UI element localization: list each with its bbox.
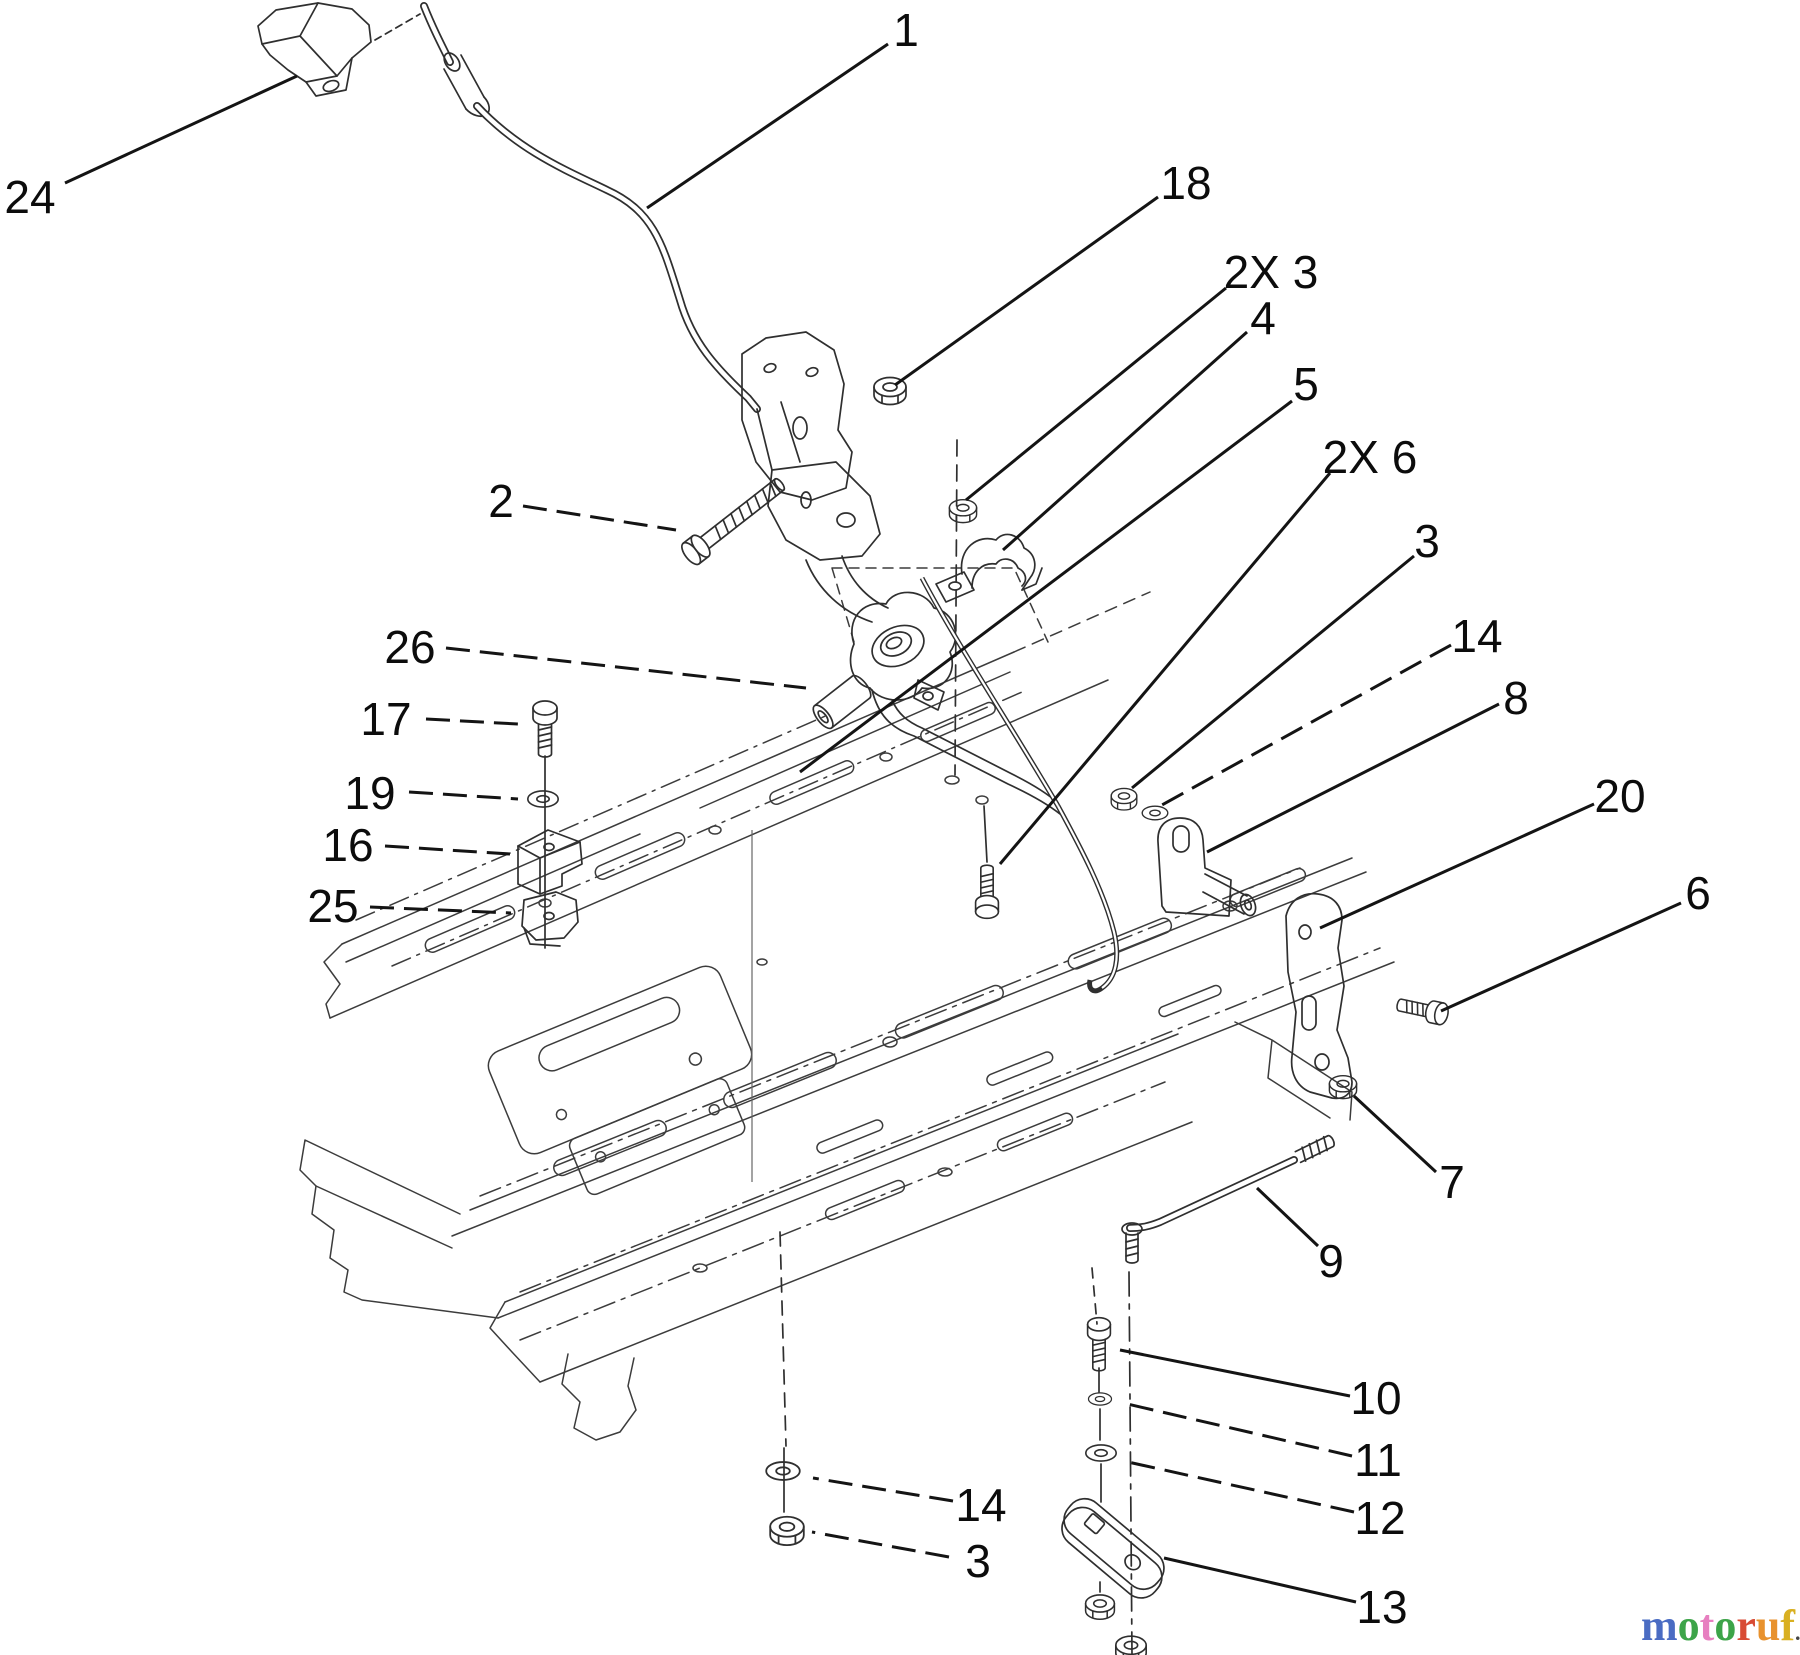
leader-line xyxy=(385,846,510,854)
callout-label: 3 xyxy=(965,1535,991,1587)
callout-4: 4 xyxy=(1003,292,1276,550)
callout-label: 19 xyxy=(344,767,395,819)
callout-20: 20 xyxy=(1320,770,1646,928)
leader-line xyxy=(1123,1403,1352,1456)
callout-label: 25 xyxy=(307,880,358,932)
callouts-layer: 241182X 3452X 63148206791011121314322617… xyxy=(4,4,1710,1633)
callout-24: 24 xyxy=(4,76,297,223)
callout-label: 12 xyxy=(1354,1492,1405,1544)
washer-14-right xyxy=(1142,806,1168,820)
leader-line xyxy=(1132,556,1414,788)
leader-line xyxy=(409,792,518,799)
callout-13: 13 xyxy=(1164,1558,1408,1633)
leader-line xyxy=(523,506,676,530)
callout-18: 18 xyxy=(895,157,1212,385)
callout-label: 1 xyxy=(893,4,919,56)
callout-label: 26 xyxy=(384,621,435,673)
callout-5: 5 xyxy=(800,358,1319,772)
callout-label: 24 xyxy=(4,171,55,223)
leader-line xyxy=(1257,1188,1318,1246)
callout-label: 8 xyxy=(1503,672,1529,724)
callout-label: 4 xyxy=(1250,292,1276,344)
leader-line xyxy=(370,907,511,913)
leader-line xyxy=(1120,1350,1350,1396)
parts-diagram-page: 241182X 3452X 63148206791011121314322617… xyxy=(0,0,1800,1655)
leader-line xyxy=(1164,1558,1356,1602)
fastener-stack-right xyxy=(1052,1272,1175,1655)
washer-12 xyxy=(1086,1445,1116,1461)
callout-label: 5 xyxy=(1293,358,1319,410)
motoruf-watermark: motoruf.de xyxy=(1641,1601,1800,1650)
callout-label: 9 xyxy=(1318,1235,1344,1287)
callout-2: 2 xyxy=(488,475,676,530)
callout-8: 8 xyxy=(1207,672,1529,852)
callout-6: 6 xyxy=(1441,867,1711,1011)
nut-3-bottom xyxy=(770,1517,804,1545)
leader-line xyxy=(446,648,806,688)
leader-line xyxy=(1128,1462,1354,1512)
leader-line xyxy=(647,44,888,208)
callout-10: 10 xyxy=(1120,1350,1402,1424)
washer-14-bottom xyxy=(766,1462,800,1480)
exploded-parts-diagram: 241182X 3452X 63148206791011121314322617… xyxy=(0,0,1800,1655)
callout-label: 3 xyxy=(1414,515,1440,567)
shift-lever-rod xyxy=(424,6,757,409)
callout-label: 14 xyxy=(1451,610,1502,662)
callout-label: 16 xyxy=(322,819,373,871)
callout-9: 9 xyxy=(1257,1188,1344,1287)
leader-line xyxy=(813,1478,953,1501)
leader-line xyxy=(1207,704,1499,852)
callout-label: 11 xyxy=(1354,1434,1402,1486)
leader-line xyxy=(1354,1096,1436,1172)
nut-3-right xyxy=(1111,788,1137,810)
leader-line xyxy=(895,197,1158,385)
callout-25: 25 xyxy=(307,880,511,932)
callout-label: 13 xyxy=(1356,1581,1407,1633)
callout-label: 2X 6 xyxy=(1323,431,1418,483)
bolt-17 xyxy=(533,701,557,757)
nut-under-13 xyxy=(1086,1595,1115,1619)
callout-14b: 14 xyxy=(813,1478,1007,1531)
leader-line xyxy=(1441,903,1681,1011)
leader-line xyxy=(1160,645,1451,806)
bolt-10 xyxy=(1088,1318,1111,1371)
link-plate-13 xyxy=(1052,1491,1175,1605)
leader-line xyxy=(65,76,297,183)
nut-bottom xyxy=(1116,1636,1146,1655)
callout-label: 14 xyxy=(955,1479,1006,1531)
callout-17: 17 xyxy=(360,693,518,745)
frame-rails xyxy=(300,568,1394,1440)
fastener-stack-left xyxy=(518,701,582,948)
callout-3b: 3 xyxy=(812,1532,991,1587)
callout-1: 1 xyxy=(647,4,919,208)
screw-6-center xyxy=(976,865,999,918)
callout-label: 2 xyxy=(488,475,514,527)
watermark-layer: motoruf.de xyxy=(1641,1601,1800,1650)
callout-label: 6 xyxy=(1685,867,1711,919)
leader-line xyxy=(1320,804,1594,928)
leader-line xyxy=(812,1532,949,1557)
callout-16: 16 xyxy=(322,819,510,871)
bolt-2 xyxy=(678,472,789,567)
callout-14r: 14 xyxy=(1160,610,1503,806)
callout-7: 7 xyxy=(1354,1096,1465,1208)
leader-line xyxy=(1000,473,1330,864)
callout-2x3: 2X 3 xyxy=(966,246,1318,500)
callout-19: 19 xyxy=(344,767,518,819)
leader-line xyxy=(426,719,518,724)
bracket-20 xyxy=(1286,894,1352,1099)
lever-bracket xyxy=(742,332,888,622)
nut-3-upper xyxy=(949,500,976,523)
callout-label: 2X 3 xyxy=(1224,246,1319,298)
washer-19 xyxy=(528,791,558,807)
callout-label: 18 xyxy=(1160,157,1211,209)
callout-26: 26 xyxy=(384,621,806,688)
callout-label: 17 xyxy=(360,693,411,745)
callout-label: 7 xyxy=(1439,1156,1465,1208)
callout-label: 20 xyxy=(1594,770,1645,822)
clamp-16 xyxy=(518,830,582,894)
callout-label: 10 xyxy=(1350,1372,1401,1424)
lock-washer-11 xyxy=(1088,1393,1111,1405)
